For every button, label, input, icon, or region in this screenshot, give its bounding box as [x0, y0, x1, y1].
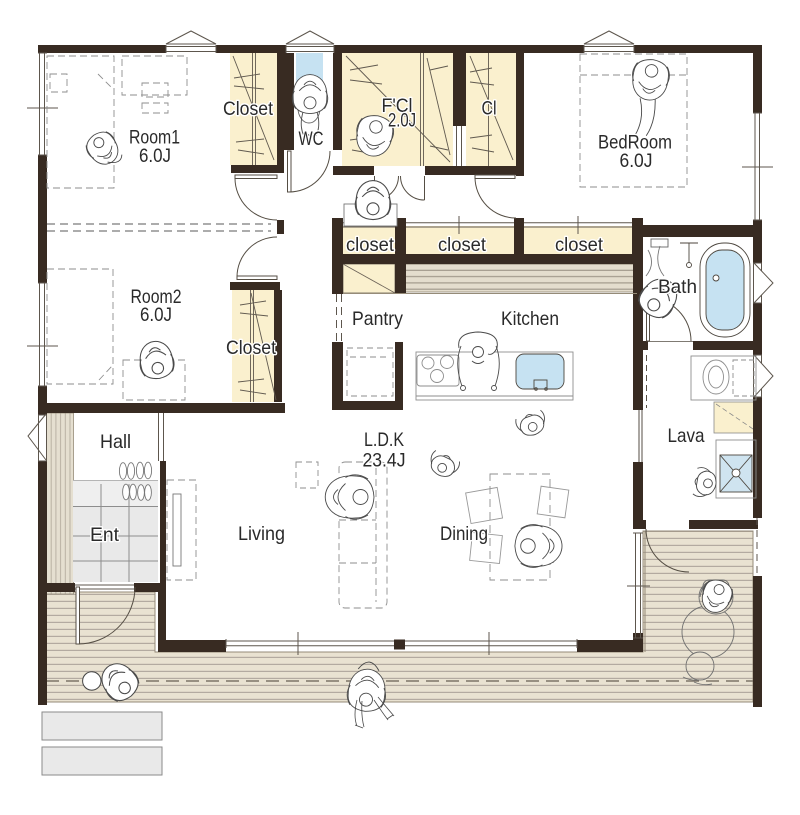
svg-text:Closet: Closet: [223, 98, 274, 120]
svg-text:6.0J: 6.0J: [139, 145, 171, 167]
svg-text:23.4J: 23.4J: [363, 450, 406, 472]
svg-text:2.0J: 2.0J: [388, 110, 416, 132]
svg-text:6.0J: 6.0J: [620, 150, 653, 172]
svg-text:closet: closet: [346, 235, 395, 256]
svg-text:Hall: Hall: [100, 431, 131, 453]
svg-text:Dining: Dining: [440, 523, 488, 545]
svg-text:WC: WC: [299, 128, 324, 150]
svg-text:Kitchen: Kitchen: [501, 308, 559, 330]
svg-text:Closet: Closet: [226, 337, 277, 359]
svg-text:closet: closet: [555, 235, 604, 256]
svg-text:Ent: Ent: [90, 524, 120, 546]
svg-text:Pantry: Pantry: [352, 308, 403, 330]
svg-text:Bath: Bath: [658, 276, 697, 298]
svg-text:Cl: Cl: [482, 98, 497, 120]
svg-text:6.0J: 6.0J: [140, 304, 172, 326]
svg-text:Living: Living: [238, 523, 285, 545]
svg-text:closet: closet: [438, 235, 487, 256]
svg-text:Lava: Lava: [668, 425, 705, 447]
svg-text:L.D.K: L.D.K: [364, 429, 404, 451]
